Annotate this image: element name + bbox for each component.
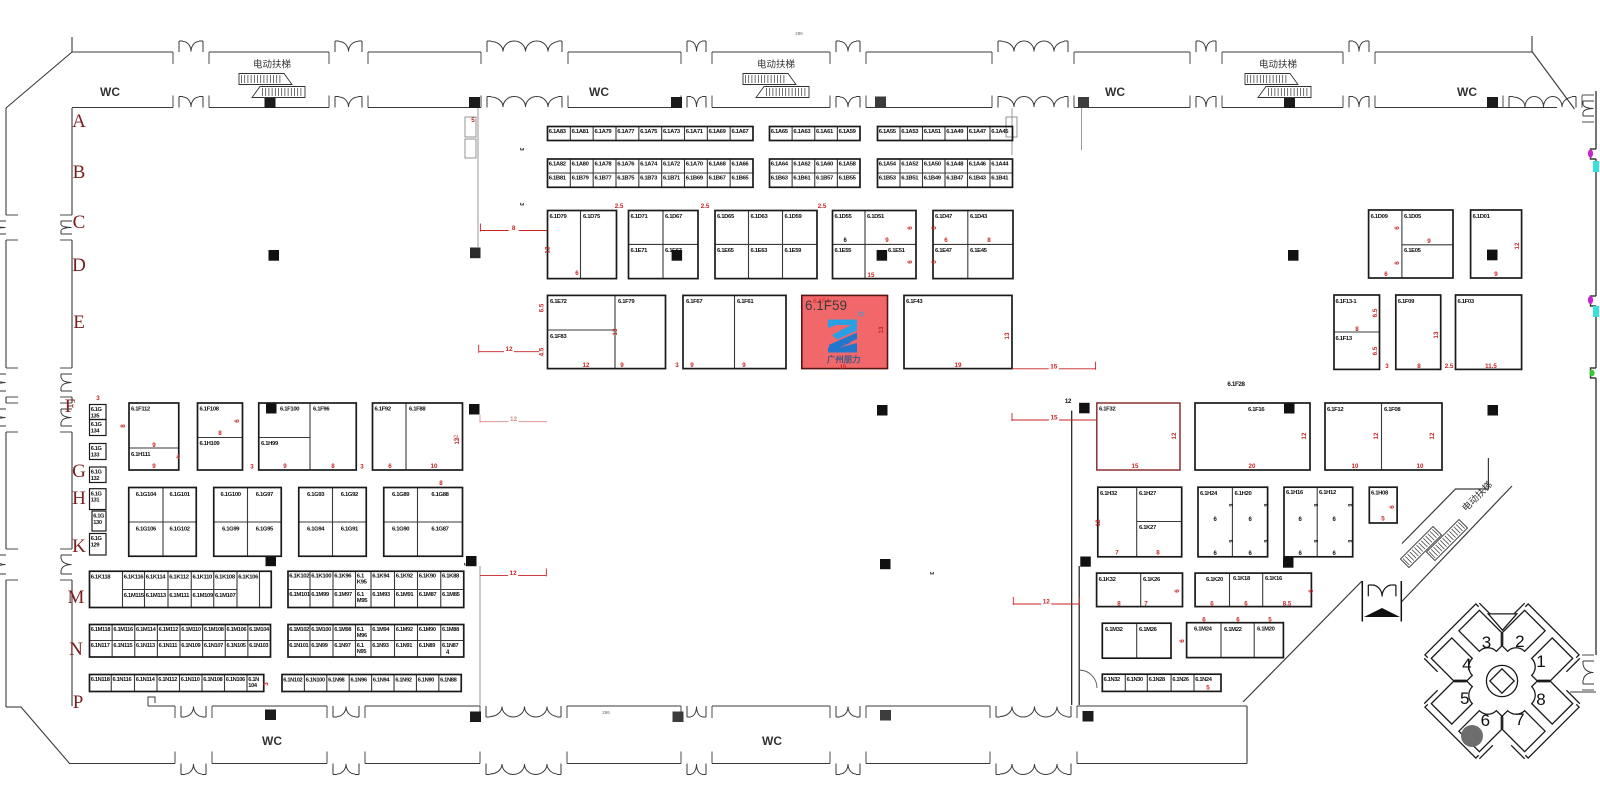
svg-text:130: 130 [93, 520, 102, 526]
svg-text:13: 13 [878, 326, 885, 333]
svg-text:6.1D79: 6.1D79 [550, 214, 568, 220]
svg-text:6.1K110: 6.1K110 [192, 575, 213, 581]
svg-text:6.1M110: 6.1M110 [181, 627, 201, 633]
svg-text:6.1A45: 6.1A45 [991, 129, 1009, 135]
svg-text:6.1N115: 6.1N115 [113, 643, 132, 649]
svg-text:6.1M108: 6.1M108 [204, 627, 224, 633]
svg-text:6.1G99: 6.1G99 [222, 527, 240, 533]
svg-text:3: 3 [250, 464, 254, 471]
svg-text:12: 12 [510, 416, 518, 423]
svg-text:6.1A71: 6.1A71 [686, 129, 704, 135]
svg-text:6: 6 [1202, 617, 1206, 624]
svg-text:6.1G95: 6.1G95 [256, 527, 274, 533]
svg-text:6.1M32: 6.1M32 [1105, 627, 1124, 633]
svg-text:6.1A76: 6.1A76 [617, 162, 635, 168]
svg-text:4: 4 [176, 454, 180, 461]
svg-text:8: 8 [120, 424, 127, 428]
svg-text:6: 6 [1394, 261, 1401, 265]
svg-text:6.1E72: 6.1E72 [550, 299, 568, 305]
svg-text:6.1B51: 6.1B51 [901, 176, 919, 182]
svg-text:131: 131 [91, 498, 100, 504]
svg-text:9: 9 [742, 362, 746, 369]
svg-text:6.1F28: 6.1F28 [1227, 381, 1245, 388]
svg-text:9: 9 [620, 362, 624, 369]
svg-text:6.1F13-1: 6.1F13-1 [1336, 299, 1358, 305]
svg-text:6.1M102: 6.1M102 [289, 627, 309, 633]
svg-text:6.1N101: 6.1N101 [289, 643, 308, 649]
svg-text:13: 13 [612, 328, 619, 335]
svg-text:6.1E47: 6.1E47 [935, 248, 953, 254]
svg-text:6: 6 [907, 226, 914, 230]
svg-text:6.1A51: 6.1A51 [924, 129, 942, 135]
svg-text:133: 133 [91, 453, 100, 459]
svg-text:6.1B69: 6.1B69 [686, 176, 704, 182]
svg-text:6.1F12: 6.1F12 [1327, 407, 1344, 413]
svg-text:6.1G94: 6.1G94 [307, 527, 325, 533]
svg-text:9: 9 [152, 463, 156, 470]
svg-text:6.1A65: 6.1A65 [771, 129, 789, 135]
svg-text:12: 12 [1065, 398, 1072, 405]
svg-text:15: 15 [1050, 363, 1058, 370]
svg-text:15: 15 [840, 365, 846, 371]
svg-text:6.1N89: 6.1N89 [419, 643, 435, 649]
svg-text:6.1G91: 6.1G91 [341, 527, 359, 533]
svg-text:9: 9 [1494, 271, 1498, 278]
svg-text:6.1N98: 6.1N98 [328, 677, 344, 683]
svg-text:8: 8 [218, 430, 222, 437]
svg-text:6.1M99: 6.1M99 [311, 592, 330, 598]
svg-text:6.1M113: 6.1M113 [146, 593, 167, 599]
svg-text:6.1B81: 6.1B81 [549, 176, 567, 182]
svg-text:6.1G100: 6.1G100 [221, 492, 242, 498]
svg-text:6.1D63: 6.1D63 [751, 214, 769, 220]
svg-text:6.1F83: 6.1F83 [550, 334, 567, 340]
svg-text:8: 8 [1355, 326, 1359, 333]
svg-text:6.1A52: 6.1A52 [901, 162, 919, 168]
svg-text:6.1N107: 6.1N107 [204, 643, 223, 649]
svg-text:6.1A55: 6.1A55 [879, 129, 897, 135]
svg-text:6.1N103: 6.1N103 [249, 643, 268, 649]
svg-text:6.1G93: 6.1G93 [307, 492, 325, 498]
svg-text:6: 6 [1346, 504, 1352, 507]
svg-text:6.1A73: 6.1A73 [663, 129, 681, 135]
svg-text:6.1D59: 6.1D59 [785, 214, 803, 220]
svg-text:6.1M106: 6.1M106 [227, 627, 247, 633]
svg-text:6.1N26: 6.1N26 [1172, 677, 1188, 683]
svg-text:N: N [69, 639, 83, 660]
svg-text:E: E [73, 312, 85, 333]
svg-text:15: 15 [1050, 415, 1058, 422]
svg-text:6.1G: 6.1G [91, 422, 103, 428]
svg-text:6.1A68: 6.1A68 [709, 162, 727, 168]
svg-text:6.1N109: 6.1N109 [181, 643, 200, 649]
svg-text:6.1M97: 6.1M97 [334, 592, 353, 598]
svg-text:6.1A50: 6.1A50 [924, 162, 942, 168]
svg-text:6.1N28: 6.1N28 [1149, 677, 1165, 683]
svg-text:3: 3 [96, 395, 100, 402]
svg-text:6.1N96: 6.1N96 [351, 677, 367, 683]
svg-text:6.1F59: 6.1F59 [805, 298, 847, 313]
svg-text:8: 8 [331, 463, 335, 470]
svg-text:6.1G102: 6.1G102 [170, 527, 191, 533]
svg-text:H: H [72, 488, 86, 509]
svg-text:19: 19 [955, 362, 962, 369]
svg-text:8: 8 [1417, 363, 1421, 370]
svg-text:6.1H08: 6.1H08 [1371, 491, 1389, 497]
svg-text:6.1K102: 6.1K102 [289, 574, 310, 580]
svg-text:K95: K95 [357, 580, 368, 586]
svg-text:8: 8 [439, 480, 443, 487]
svg-text:6.1A82: 6.1A82 [549, 162, 567, 168]
svg-text:129: 129 [91, 543, 100, 549]
svg-text:5: 5 [1381, 516, 1385, 523]
svg-text:6.1E45: 6.1E45 [970, 248, 988, 254]
svg-text:6.1M118: 6.1M118 [91, 627, 111, 633]
svg-text:6.1F32: 6.1F32 [1099, 407, 1116, 413]
svg-text:6.1N92: 6.1N92 [395, 677, 411, 683]
svg-text:M95: M95 [357, 598, 368, 604]
svg-text:6.1A59: 6.1A59 [839, 129, 857, 135]
svg-text:12: 12 [453, 434, 460, 441]
svg-text:6.1B79: 6.1B79 [572, 176, 590, 182]
svg-text:6.5: 6.5 [1372, 308, 1379, 317]
svg-text:12: 12 [1095, 519, 1102, 526]
svg-text:6.1A58: 6.1A58 [839, 162, 857, 168]
svg-text:6.1G101: 6.1G101 [170, 492, 191, 498]
svg-text:6.1M22: 6.1M22 [1224, 627, 1243, 633]
svg-text:6.1N100: 6.1N100 [306, 677, 325, 683]
svg-text:6.1F92: 6.1F92 [375, 407, 392, 413]
svg-text:12: 12 [1514, 242, 1521, 249]
svg-text:WC: WC [262, 734, 282, 748]
svg-text:12: 12 [1301, 432, 1308, 439]
svg-text:6: 6 [1312, 504, 1318, 507]
svg-text:6: 6 [1262, 540, 1268, 543]
svg-text:6.1B61: 6.1B61 [793, 176, 811, 182]
svg-text:6.1K90: 6.1K90 [419, 574, 437, 580]
svg-text:C: C [73, 212, 86, 233]
svg-text:8: 8 [1536, 690, 1545, 709]
svg-text:6.1M98: 6.1M98 [334, 627, 351, 633]
svg-text:6.1D65: 6.1D65 [717, 214, 735, 220]
svg-text:电动扶梯: 电动扶梯 [1259, 59, 1298, 71]
svg-text:F: F [65, 396, 76, 417]
svg-text:12: 12 [1043, 599, 1051, 606]
svg-text:6.1D09: 6.1D09 [1371, 214, 1389, 220]
svg-text:6.1E59: 6.1E59 [785, 248, 803, 254]
svg-text:6.1G89: 6.1G89 [392, 492, 410, 498]
svg-text:3: 3 [1482, 633, 1491, 652]
svg-text:6.1G88: 6.1G88 [431, 492, 449, 498]
svg-text:6: 6 [1384, 271, 1388, 278]
svg-text:6: 6 [931, 260, 938, 264]
svg-text:6.1H32: 6.1H32 [1100, 491, 1118, 497]
svg-text:6.1K18: 6.1K18 [1233, 576, 1251, 582]
svg-text:15: 15 [868, 272, 875, 279]
svg-text:6.1F112: 6.1F112 [131, 407, 151, 413]
svg-text:6.1N91: 6.1N91 [396, 643, 412, 649]
svg-text:6.1B49: 6.1B49 [924, 176, 942, 182]
svg-text:6.1G97: 6.1G97 [256, 492, 274, 498]
svg-text:6: 6 [1210, 601, 1214, 608]
svg-text:6.1F67: 6.1F67 [686, 299, 703, 305]
svg-text:134: 134 [91, 429, 101, 435]
svg-text:6.1N99: 6.1N99 [311, 643, 327, 649]
svg-text:6.1A54: 6.1A54 [879, 162, 897, 168]
svg-text:6.1G90: 6.1G90 [392, 527, 410, 533]
svg-text:6.1A70: 6.1A70 [686, 162, 704, 168]
svg-text:WC: WC [1105, 85, 1125, 99]
svg-text:6: 6 [1308, 589, 1315, 593]
svg-text:6.1K112: 6.1K112 [169, 575, 190, 581]
svg-text:8: 8 [512, 225, 516, 232]
svg-text:M96: M96 [357, 633, 367, 639]
svg-text:6.1K27: 6.1K27 [1139, 525, 1157, 531]
svg-text:3: 3 [462, 563, 468, 566]
svg-text:6.1H24: 6.1H24 [1200, 491, 1218, 497]
svg-text:6.1N30: 6.1N30 [1127, 677, 1143, 683]
svg-text:6: 6 [1179, 639, 1186, 643]
svg-text:6.1K88: 6.1K88 [442, 574, 460, 580]
svg-text:6.1B53: 6.1B53 [879, 176, 897, 182]
svg-text:6.5: 6.5 [539, 303, 546, 312]
svg-text:8: 8 [1156, 550, 1160, 557]
svg-text:6.1N94: 6.1N94 [373, 677, 390, 683]
svg-text:3: 3 [360, 464, 364, 471]
svg-text:6.1N87: 6.1N87 [442, 643, 458, 649]
svg-text:2.5: 2.5 [701, 203, 710, 210]
svg-text:8.5: 8.5 [1283, 601, 1292, 608]
svg-text:286: 286 [602, 710, 610, 715]
svg-text:9: 9 [152, 442, 156, 449]
svg-text:6.1M116: 6.1M116 [113, 627, 133, 633]
svg-text:6.1N93: 6.1N93 [372, 643, 388, 649]
svg-text:6.1N108: 6.1N108 [203, 677, 222, 683]
svg-text:5: 5 [471, 117, 475, 124]
svg-text:6.1F43: 6.1F43 [906, 299, 923, 305]
svg-text:6.1A48: 6.1A48 [946, 162, 964, 168]
svg-text:6: 6 [1346, 540, 1352, 543]
svg-text:6.1K106: 6.1K106 [238, 575, 259, 581]
svg-text:6.1A49: 6.1A49 [946, 129, 964, 135]
svg-text:6.1A78: 6.1A78 [594, 162, 612, 168]
svg-text:K: K [72, 536, 86, 557]
svg-text:6: 6 [388, 463, 392, 470]
svg-text:WC: WC [762, 734, 782, 748]
svg-text:6: 6 [1227, 540, 1233, 543]
svg-text:1: 1 [1536, 652, 1545, 671]
svg-text:6.1F03: 6.1F03 [1458, 299, 1475, 305]
svg-text:6.1B63: 6.1B63 [771, 176, 789, 182]
svg-text:6.1D71: 6.1D71 [631, 214, 649, 220]
svg-text:6.1A60: 6.1A60 [816, 162, 834, 168]
svg-text:2.5: 2.5 [615, 203, 624, 210]
svg-text:电动扶梯: 电动扶梯 [253, 59, 292, 71]
svg-text:3: 3 [675, 362, 679, 369]
svg-text:10: 10 [1352, 463, 1359, 470]
svg-text:6.1A67: 6.1A67 [731, 129, 749, 135]
svg-text:6: 6 [907, 260, 914, 264]
svg-text:6.1A75: 6.1A75 [640, 129, 658, 135]
svg-text:3: 3 [518, 148, 524, 151]
svg-text:6: 6 [1394, 226, 1401, 230]
svg-text:6.1M87: 6.1M87 [419, 592, 438, 598]
svg-text:6.1M85: 6.1M85 [442, 592, 461, 598]
svg-text:6.1M111: 6.1M111 [169, 593, 190, 599]
svg-text:6.1M109: 6.1M109 [192, 593, 214, 599]
svg-text:6.1M93: 6.1M93 [372, 592, 391, 598]
svg-text:6.1A79: 6.1A79 [594, 129, 612, 135]
svg-text:6.1N114: 6.1N114 [136, 677, 156, 683]
svg-text:6.1M88: 6.1M88 [442, 627, 459, 633]
svg-text:6.1N24: 6.1N24 [1195, 677, 1212, 683]
svg-text:6.1K114: 6.1K114 [146, 575, 167, 581]
svg-text:6.1A83: 6.1A83 [549, 129, 567, 135]
svg-text:6.1H99: 6.1H99 [261, 441, 279, 447]
svg-text:12: 12 [1429, 432, 1436, 439]
svg-text:6.1D47: 6.1D47 [935, 214, 953, 220]
svg-text:6.1N111: 6.1N111 [159, 643, 178, 649]
svg-text:6.1A64: 6.1A64 [771, 162, 789, 168]
svg-text:6.1H12: 6.1H12 [1319, 490, 1337, 496]
svg-text:6: 6 [1236, 617, 1240, 624]
svg-text:2: 2 [1515, 632, 1524, 651]
svg-text:7: 7 [1144, 601, 1148, 608]
svg-text:6.1A62: 6.1A62 [793, 162, 811, 168]
svg-text:4: 4 [1462, 655, 1471, 674]
svg-text:WC: WC [100, 85, 120, 99]
svg-text:6.1B73: 6.1B73 [640, 176, 658, 182]
svg-text:7: 7 [1515, 710, 1524, 729]
svg-text:B: B [73, 162, 86, 183]
svg-text:6.1M94: 6.1M94 [372, 627, 390, 633]
svg-text:6.1F108: 6.1F108 [200, 407, 220, 413]
svg-text:6.1M101: 6.1M101 [289, 592, 311, 598]
svg-text:2.5: 2.5 [1445, 363, 1454, 370]
svg-text:6.1A74: 6.1A74 [640, 162, 658, 168]
svg-text:6.1D55: 6.1D55 [835, 214, 853, 220]
svg-text:13: 13 [1004, 332, 1011, 339]
svg-text:WC: WC [1457, 85, 1477, 99]
svg-text:6.1G104: 6.1G104 [136, 492, 157, 498]
svg-text:6.1M107: 6.1M107 [215, 593, 237, 599]
svg-text:6: 6 [944, 237, 948, 244]
svg-text:6.1E55: 6.1E55 [835, 248, 853, 254]
svg-text:6.1N110: 6.1N110 [181, 677, 200, 683]
svg-text:8: 8 [987, 237, 991, 244]
svg-text:6.1M112: 6.1M112 [159, 627, 179, 633]
svg-text:6.1K16: 6.1K16 [1265, 576, 1283, 582]
svg-text:6.1M115: 6.1M115 [124, 593, 145, 599]
svg-text:3: 3 [928, 572, 934, 575]
svg-text:6: 6 [1174, 589, 1181, 593]
svg-text:6.5: 6.5 [1372, 346, 1379, 355]
svg-text:6.1M20: 6.1M20 [1257, 627, 1276, 633]
svg-text:M: M [68, 587, 85, 608]
svg-text:6.1K116: 6.1K116 [124, 575, 145, 581]
svg-text:3: 3 [518, 203, 524, 206]
svg-text:12: 12 [505, 346, 513, 353]
svg-text:6.1N116: 6.1N116 [113, 677, 132, 683]
svg-text:6.1N117: 6.1N117 [91, 643, 110, 649]
svg-text:20: 20 [1249, 463, 1256, 470]
svg-text:6.1A47: 6.1A47 [969, 129, 987, 135]
svg-text:6: 6 [1312, 540, 1318, 543]
svg-text:广州朋力: 广州朋力 [827, 355, 861, 365]
svg-text:6.1N90: 6.1N90 [418, 677, 434, 683]
svg-text:6.1N97: 6.1N97 [334, 643, 350, 649]
svg-text:6.1K32: 6.1K32 [1099, 577, 1117, 583]
svg-text:6.1F100: 6.1F100 [280, 407, 300, 413]
svg-text:6.1M92: 6.1M92 [396, 627, 413, 633]
svg-text:6.1A61: 6.1A61 [816, 129, 834, 135]
svg-text:12: 12 [1373, 432, 1380, 439]
svg-text:5: 5 [1268, 617, 1272, 624]
svg-text:6.1A69: 6.1A69 [709, 129, 727, 135]
svg-text:6: 6 [1262, 504, 1268, 507]
svg-text:13: 13 [1433, 331, 1440, 338]
svg-text:135: 135 [91, 414, 100, 420]
svg-text:6.1F88: 6.1F88 [409, 407, 426, 413]
svg-text:6: 6 [575, 270, 579, 277]
svg-text:6.1A80: 6.1A80 [572, 162, 590, 168]
svg-text:6: 6 [1481, 711, 1490, 730]
svg-text:6.1A53: 6.1A53 [901, 129, 919, 135]
svg-text:6: 6 [1244, 601, 1248, 608]
svg-text:6.1F09: 6.1F09 [1398, 299, 1415, 305]
svg-text:P: P [73, 692, 84, 713]
svg-text:6.1K108: 6.1K108 [215, 575, 236, 581]
svg-text:6.1B57: 6.1B57 [816, 176, 834, 182]
svg-text:6.1G: 6.1G [91, 407, 103, 413]
svg-text:9: 9 [690, 362, 694, 369]
svg-text:D: D [72, 255, 86, 276]
svg-text:6: 6 [234, 419, 241, 423]
svg-text:6.1A81: 6.1A81 [572, 129, 590, 135]
svg-text:6.1M90: 6.1M90 [419, 627, 436, 633]
svg-text:12: 12 [583, 362, 590, 369]
svg-text:6.1F16: 6.1F16 [1248, 407, 1265, 413]
svg-text:6.1M24: 6.1M24 [1194, 627, 1213, 633]
svg-text:6.1G: 6.1G [91, 491, 103, 497]
svg-text:6.1A44: 6.1A44 [991, 162, 1009, 168]
svg-text:6.1E05: 6.1E05 [1404, 248, 1422, 254]
svg-text:3: 3 [1385, 363, 1389, 370]
svg-text:6.1N32: 6.1N32 [1104, 677, 1120, 683]
svg-text:6.1H111: 6.1H111 [131, 452, 151, 458]
svg-text:6.1N105: 6.1N105 [227, 643, 246, 649]
svg-text:6.1E65: 6.1E65 [717, 248, 735, 254]
svg-text:6.1B41: 6.1B41 [991, 176, 1009, 182]
svg-text:A: A [72, 111, 86, 132]
svg-text:6.1A46: 6.1A46 [969, 162, 987, 168]
svg-text:6.1G: 6.1G [91, 536, 103, 542]
svg-text:12: 12 [545, 246, 552, 253]
svg-text:6.1G92: 6.1G92 [341, 492, 359, 498]
svg-text:6: 6 [931, 226, 938, 230]
svg-text:6.1B47: 6.1B47 [946, 176, 964, 182]
svg-text:6.1B71: 6.1B71 [663, 176, 681, 182]
svg-text:132: 132 [91, 476, 100, 482]
svg-text:6.1A63: 6.1A63 [793, 129, 811, 135]
svg-text:6.1D01: 6.1D01 [1473, 214, 1491, 220]
svg-text:5: 5 [1460, 689, 1469, 708]
svg-text:6.1H27: 6.1H27 [1139, 491, 1157, 497]
svg-text:6.1D51: 6.1D51 [867, 214, 885, 220]
svg-text:6.1N113: 6.1N113 [136, 643, 155, 649]
svg-text:6.1F79: 6.1F79 [618, 299, 635, 305]
svg-text:2.5: 2.5 [818, 203, 827, 210]
